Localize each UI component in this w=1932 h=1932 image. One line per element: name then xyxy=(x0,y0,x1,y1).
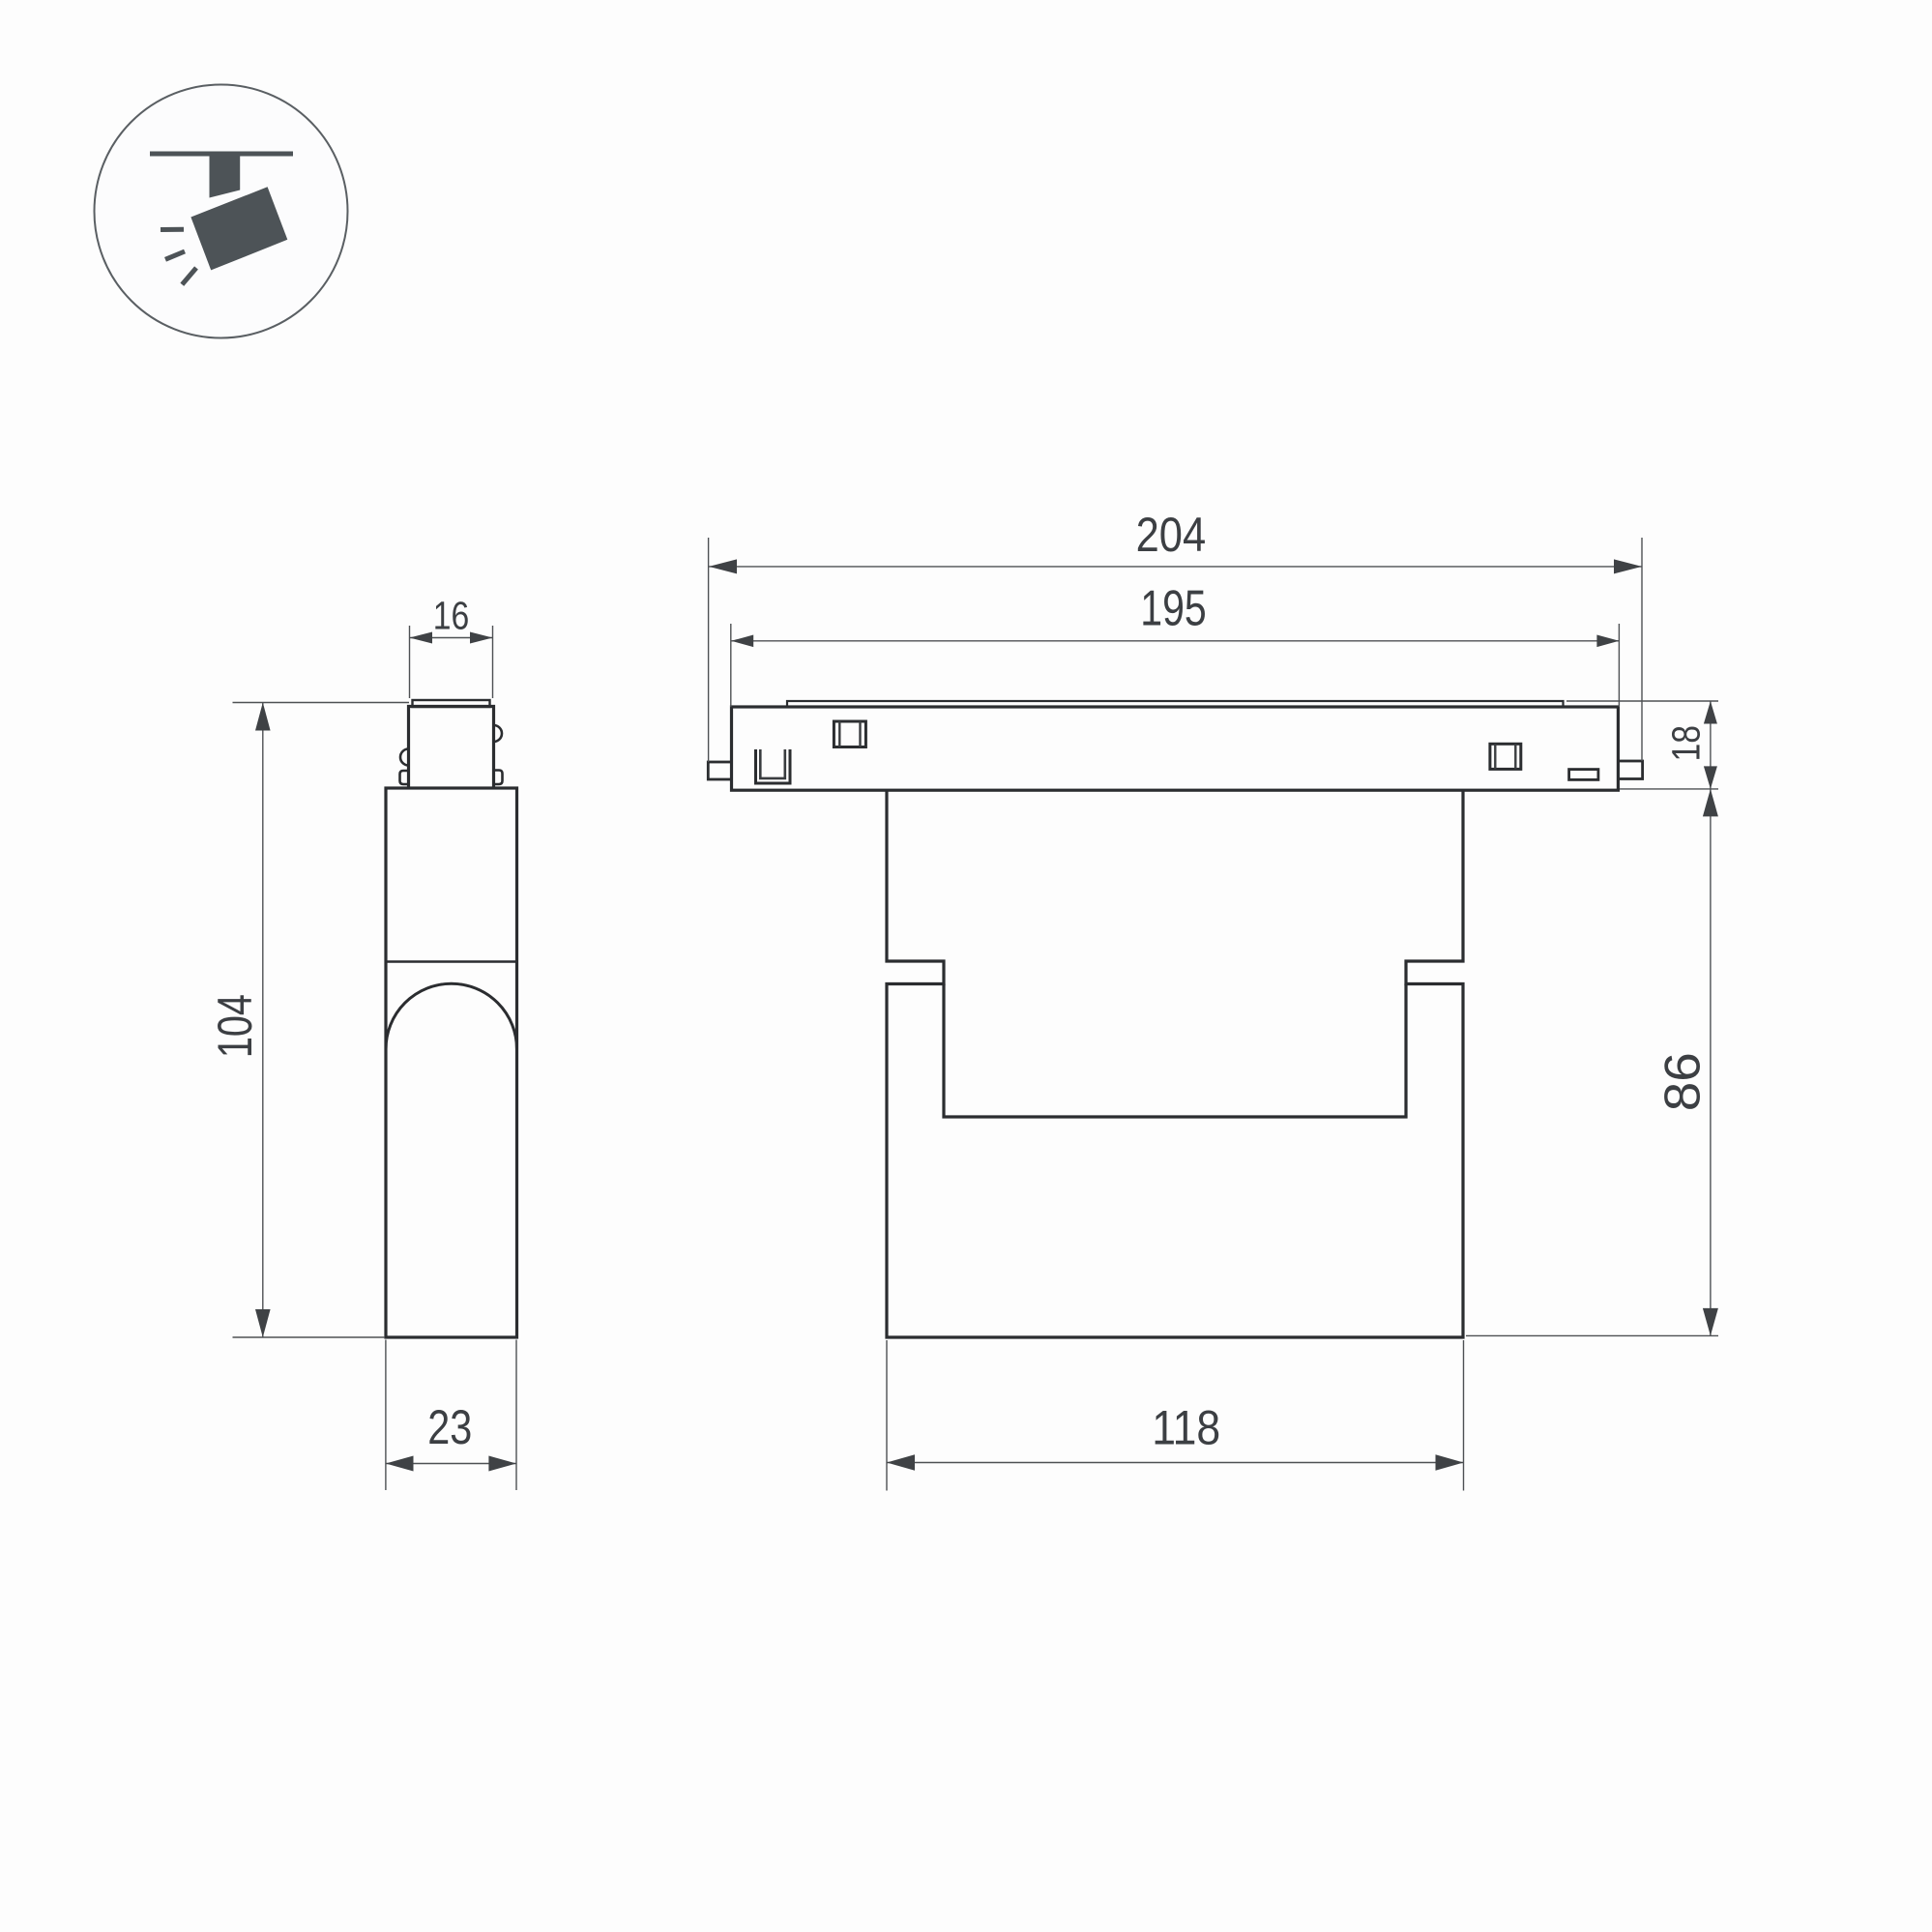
svg-text:23: 23 xyxy=(427,1400,472,1454)
svg-text:104: 104 xyxy=(208,994,262,1058)
svg-text:16: 16 xyxy=(433,594,470,638)
svg-text:204: 204 xyxy=(1136,508,1207,562)
svg-text:195: 195 xyxy=(1140,579,1207,635)
svg-text:118: 118 xyxy=(1152,1401,1220,1455)
svg-text:18: 18 xyxy=(1664,725,1709,762)
svg-text:86: 86 xyxy=(1654,1052,1710,1111)
